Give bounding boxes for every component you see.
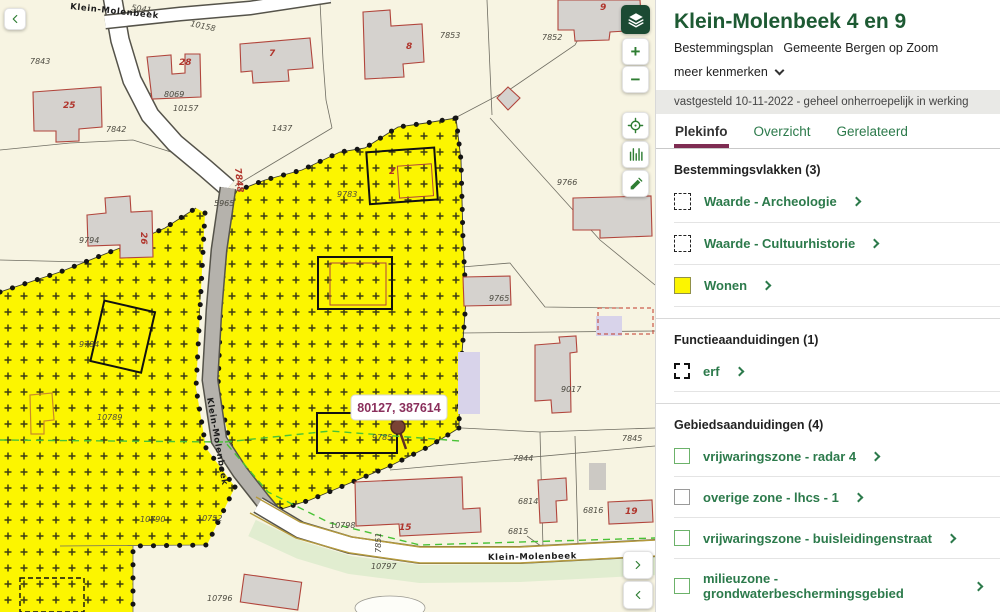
chevron-right-icon	[762, 281, 772, 291]
building-number-label: 2	[389, 167, 395, 177]
more-attributes-label: meer kenmerken	[674, 65, 768, 79]
parcel-label: 10798	[330, 521, 355, 530]
parcel-label: 7853	[440, 31, 460, 40]
app-window: 7843784280691015710158504114375965978397…	[0, 0, 1000, 612]
dashed-swatch-icon	[674, 193, 691, 210]
legend-item[interactable]: vrijwaringszone - buisleidingenstraat	[656, 518, 1000, 558]
plan-type: Bestemmingsplan	[674, 41, 773, 55]
gray-outline-swatch-icon	[674, 489, 690, 505]
parcel-label: 10789	[97, 413, 122, 422]
layers-button[interactable]	[621, 5, 650, 34]
section-title: Functieaanduidingen (1)	[656, 319, 1000, 351]
parcel-label: 9017	[561, 385, 582, 394]
status-bar: vastgesteld 10-11-2022 - geheel onherroe…	[656, 90, 1000, 114]
layers-icon	[627, 11, 645, 29]
legend-item-label: Wonen	[704, 278, 747, 293]
parcel-label: 7845	[622, 434, 642, 443]
building-number-label: 28	[179, 58, 192, 68]
zoning-map[interactable]: 7843784280691015710158504114375965978397…	[0, 0, 655, 612]
parcel-label: 7851	[374, 533, 383, 553]
parcel-label: 9765	[489, 294, 509, 303]
parcel-label: 7843	[30, 57, 50, 66]
legend-item[interactable]: Wonen	[656, 265, 1000, 306]
legend-item[interactable]: milieuzone - grondwaterbeschermingsgebie…	[656, 559, 1000, 612]
legend-item[interactable]: vrijwaringszone - radar 4	[656, 436, 1000, 476]
chevron-left-icon	[631, 588, 645, 602]
parcel-label: 6816	[583, 506, 603, 515]
chevron-right-icon	[851, 197, 861, 207]
parcel-label: 10796	[207, 594, 232, 603]
legend-item-label: overige zone - lhcs - 1	[703, 490, 839, 505]
locate-button[interactable]	[622, 112, 649, 139]
annex-shade	[458, 352, 480, 414]
building-number-label: 7	[269, 49, 276, 59]
building-number-label: 19	[625, 507, 638, 517]
building-number-label: 8	[406, 42, 412, 52]
parcel-label: 6815	[508, 527, 528, 536]
dashed-swatch-icon	[674, 235, 691, 252]
info-panel: Klein-Molenbeek 4 en 9 BestemmingsplanGe…	[655, 0, 1000, 612]
legend-item-label: erf	[703, 364, 720, 379]
green-outline-swatch-icon	[674, 578, 690, 594]
map-canvas[interactable]: 7843784280691015710158504114375965978397…	[0, 0, 655, 612]
legend-item[interactable]: overige zone - lhcs - 1	[656, 477, 1000, 517]
chevron-right-icon	[853, 492, 863, 502]
coordinate-label: 80127, 387614	[357, 401, 440, 415]
tab-bar: PlekinfoOverzichtGerelateerd	[656, 114, 1000, 149]
chevron-right-icon	[974, 581, 984, 591]
parcel-label: 10790	[140, 515, 165, 524]
item-divider	[674, 391, 1000, 392]
legend-item-label: Waarde - Cultuurhistorie	[704, 236, 855, 251]
tab-plekinfo[interactable]: Plekinfo	[674, 114, 729, 148]
chevron-right-icon	[870, 239, 880, 249]
coordinate-badge: 80127, 387614	[351, 395, 447, 420]
parcel-label: 9766	[557, 178, 577, 187]
draw-button[interactable]	[622, 170, 649, 197]
green-outline-swatch-icon	[674, 448, 690, 464]
parcel-label: 10752	[197, 514, 222, 523]
parcel-label: 10797	[371, 562, 397, 571]
legend-item-label: milieuzone - grondwaterbeschermingsgebie…	[703, 571, 959, 601]
pencil-icon	[628, 176, 644, 192]
chevron-right-icon	[734, 366, 744, 376]
legend-item[interactable]: Waarde - Archeologie	[656, 181, 1000, 222]
legend-item-label: vrijwaringszone - buisleidingenstraat	[703, 531, 932, 546]
tab-overzicht[interactable]: Overzicht	[753, 114, 812, 148]
plekinfo-content: Bestemmingsvlakken (3)Waarde - Archeolog…	[656, 149, 1000, 612]
item-divider	[674, 306, 1000, 307]
panel-prev-button[interactable]	[623, 581, 653, 609]
back-button[interactable]	[4, 8, 26, 30]
parcel-label: 7844	[513, 454, 533, 463]
parcel-label: 8069	[164, 90, 184, 99]
building-number-label: 9	[600, 3, 606, 13]
parcel-label: 10157	[173, 104, 199, 113]
parcel-label: 9785	[372, 433, 392, 442]
parcel-label: 5965	[214, 199, 234, 208]
plan-authority: Gemeente Bergen op Zoom	[783, 41, 938, 55]
street-name-label: Klein-Molenbeek	[488, 551, 577, 563]
zoom-out-button[interactable]: −	[622, 66, 649, 93]
parcel-label: 7842	[106, 125, 126, 134]
section-title: Gebiedsaanduidingen (4)	[656, 404, 1000, 436]
parcel-label: 7852	[542, 33, 562, 42]
legend-item[interactable]: erf	[656, 351, 1000, 391]
chevron-right-icon	[947, 533, 957, 543]
building-number-label: 25	[63, 101, 76, 111]
dashed-bold-swatch-icon	[674, 363, 690, 379]
tab-gerelateerd[interactable]: Gerelateerd	[836, 114, 909, 148]
chevron-left-icon	[8, 12, 22, 26]
parcel-label: 9784	[79, 340, 99, 349]
parcel-label: 6814	[518, 497, 538, 506]
chevron-right-icon	[631, 558, 645, 572]
parcel-label: 9783	[337, 190, 357, 199]
panel-next-button[interactable]	[623, 551, 653, 579]
parcel-label: 9794	[79, 236, 99, 245]
legend-item-label: vrijwaringszone - radar 4	[703, 449, 856, 464]
section-title: Bestemmingsvlakken (3)	[656, 149, 1000, 181]
target-icon	[627, 117, 644, 134]
page-title: Klein-Molenbeek 4 en 9	[674, 10, 982, 34]
legend-item[interactable]: Waarde - Cultuurhistorie	[656, 223, 1000, 264]
chevron-right-icon	[871, 451, 881, 461]
parcel-label: 1437	[272, 124, 293, 133]
building-number-label: 15	[399, 523, 412, 533]
plan-subtitle: BestemmingsplanGemeente Bergen op Zoom	[674, 41, 982, 55]
profile-tool-button[interactable]	[622, 141, 649, 168]
zoom-in-button[interactable]: +	[622, 38, 649, 65]
more-attributes-link[interactable]: meer kenmerken	[674, 65, 783, 79]
chevron-down-icon	[774, 65, 784, 75]
bars-icon	[627, 146, 644, 163]
yellow-swatch-icon	[674, 277, 691, 294]
building-number-label: 26	[138, 232, 148, 245]
legend-item-label: Waarde - Archeologie	[704, 194, 837, 209]
green-outline-swatch-icon	[674, 530, 690, 546]
